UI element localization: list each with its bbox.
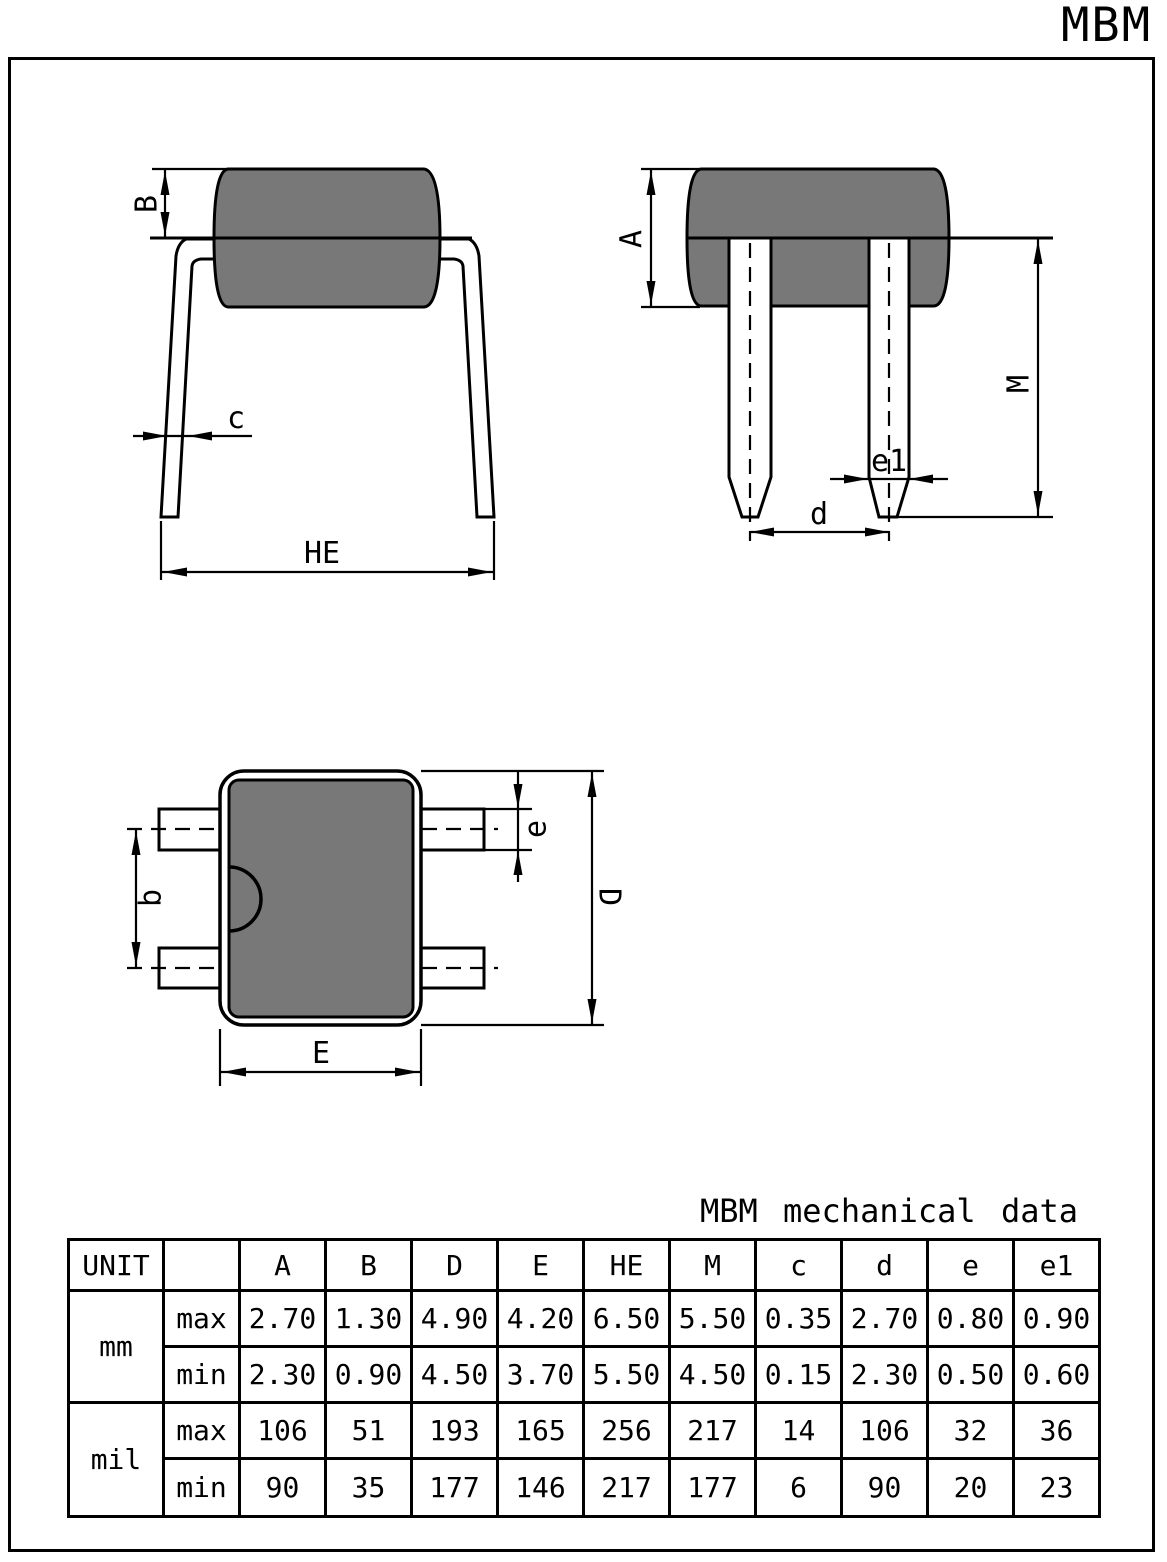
cell-mil-min-e: 20 [928, 1459, 1014, 1517]
cell-mil-max-HE: 256 [584, 1403, 670, 1459]
dim-c-label: c [227, 401, 245, 436]
col-header-D: D [412, 1240, 498, 1291]
dim-B-label: B [130, 195, 165, 213]
cell-mm-max-e1: 0.90 [1014, 1291, 1100, 1347]
cell-mil-min-HE: 217 [584, 1459, 670, 1517]
table-caption: MBM mechanical data [478, 1192, 1078, 1230]
col-header-A: A [240, 1240, 326, 1291]
dim-A-label: A [615, 230, 650, 248]
dim-D-label: D [592, 888, 627, 906]
cell-mil-min-d: 90 [842, 1459, 928, 1517]
dim-E-label: E [312, 1036, 330, 1071]
mechanical-data-table: UNIT A B D E HE M c d e e1 mm max 2.70 1… [67, 1238, 1101, 1518]
cell-mm-max-HE: 6.50 [584, 1291, 670, 1347]
cell-mil-max-E: 165 [498, 1403, 584, 1459]
cell-mil-min-e1: 23 [1014, 1459, 1100, 1517]
cell-mil-min-D: 177 [412, 1459, 498, 1517]
cell-mil-max-M: 217 [670, 1403, 756, 1459]
dim-d-label: d [810, 497, 828, 532]
top-body-mold [229, 780, 413, 1017]
dim-e1-label: e1 [871, 444, 907, 479]
cell-mm-min-HE: 5.50 [584, 1347, 670, 1403]
cell-mm-max-E: 4.20 [498, 1291, 584, 1347]
front-view: B c HE [130, 169, 495, 580]
datasheet-page: MBM B c [0, 0, 1167, 1562]
cell-mil-max-c: 14 [756, 1403, 842, 1459]
cell-mm-max-A: 2.70 [240, 1291, 326, 1347]
cell-mil-min-E: 146 [498, 1459, 584, 1517]
dim-M-label: M [1002, 375, 1037, 393]
cell-mm-min-d: 2.30 [842, 1347, 928, 1403]
cell-mm-min-E: 3.70 [498, 1347, 584, 1403]
cell-mil-min-A: 90 [240, 1459, 326, 1517]
col-header-c: c [756, 1240, 842, 1291]
cell-mm-min-B: 0.90 [326, 1347, 412, 1403]
col-header-d: d [842, 1240, 928, 1291]
cell-mm-max-d: 2.70 [842, 1291, 928, 1347]
cell-mm-min-e1: 0.60 [1014, 1347, 1100, 1403]
cell-mm-max-e: 0.80 [928, 1291, 1014, 1347]
cell-mil-max-d: 106 [842, 1403, 928, 1459]
row-label-mm-max: max [164, 1291, 240, 1347]
cell-mil-max-D: 193 [412, 1403, 498, 1459]
cell-mm-min-D: 4.50 [412, 1347, 498, 1403]
col-header-HE: HE [584, 1240, 670, 1291]
col-header-B: B [326, 1240, 412, 1291]
cell-mil-max-e: 32 [928, 1403, 1014, 1459]
side-view: A M e1 d [615, 169, 1054, 541]
row-label-mm-min: min [164, 1347, 240, 1403]
cell-mil-min-M: 177 [670, 1459, 756, 1517]
cell-mm-max-c: 0.35 [756, 1291, 842, 1347]
col-header-E: E [498, 1240, 584, 1291]
row-label-mil-min: min [164, 1459, 240, 1517]
cell-mm-max-D: 4.90 [412, 1291, 498, 1347]
cell-mm-max-M: 5.50 [670, 1291, 756, 1347]
col-header-e1: e1 [1014, 1240, 1100, 1291]
top-view: b e D [127, 771, 627, 1086]
cell-mm-min-c: 0.15 [756, 1347, 842, 1403]
unit-header: UNIT [69, 1240, 164, 1291]
cell-mil-max-B: 51 [326, 1403, 412, 1459]
cell-mil-max-A: 106 [240, 1403, 326, 1459]
col-header-e: e [928, 1240, 1014, 1291]
cell-mil-min-B: 35 [326, 1459, 412, 1517]
cell-mil-min-c: 6 [756, 1459, 842, 1517]
col-header-M: M [670, 1240, 756, 1291]
unit-mil: mil [69, 1403, 164, 1517]
cell-mil-max-e1: 36 [1014, 1403, 1100, 1459]
cell-mm-max-B: 1.30 [326, 1291, 412, 1347]
dim-b-label: b [134, 889, 169, 907]
cell-mm-min-A: 2.30 [240, 1347, 326, 1403]
unit-mm: mm [69, 1291, 164, 1403]
row-label-mil-max: max [164, 1403, 240, 1459]
dim-e-label: e [519, 820, 554, 838]
cell-mm-min-M: 4.50 [670, 1347, 756, 1403]
blank-header [164, 1240, 240, 1291]
cell-mm-min-e: 0.50 [928, 1347, 1014, 1403]
dim-HE-label: HE [304, 536, 340, 571]
